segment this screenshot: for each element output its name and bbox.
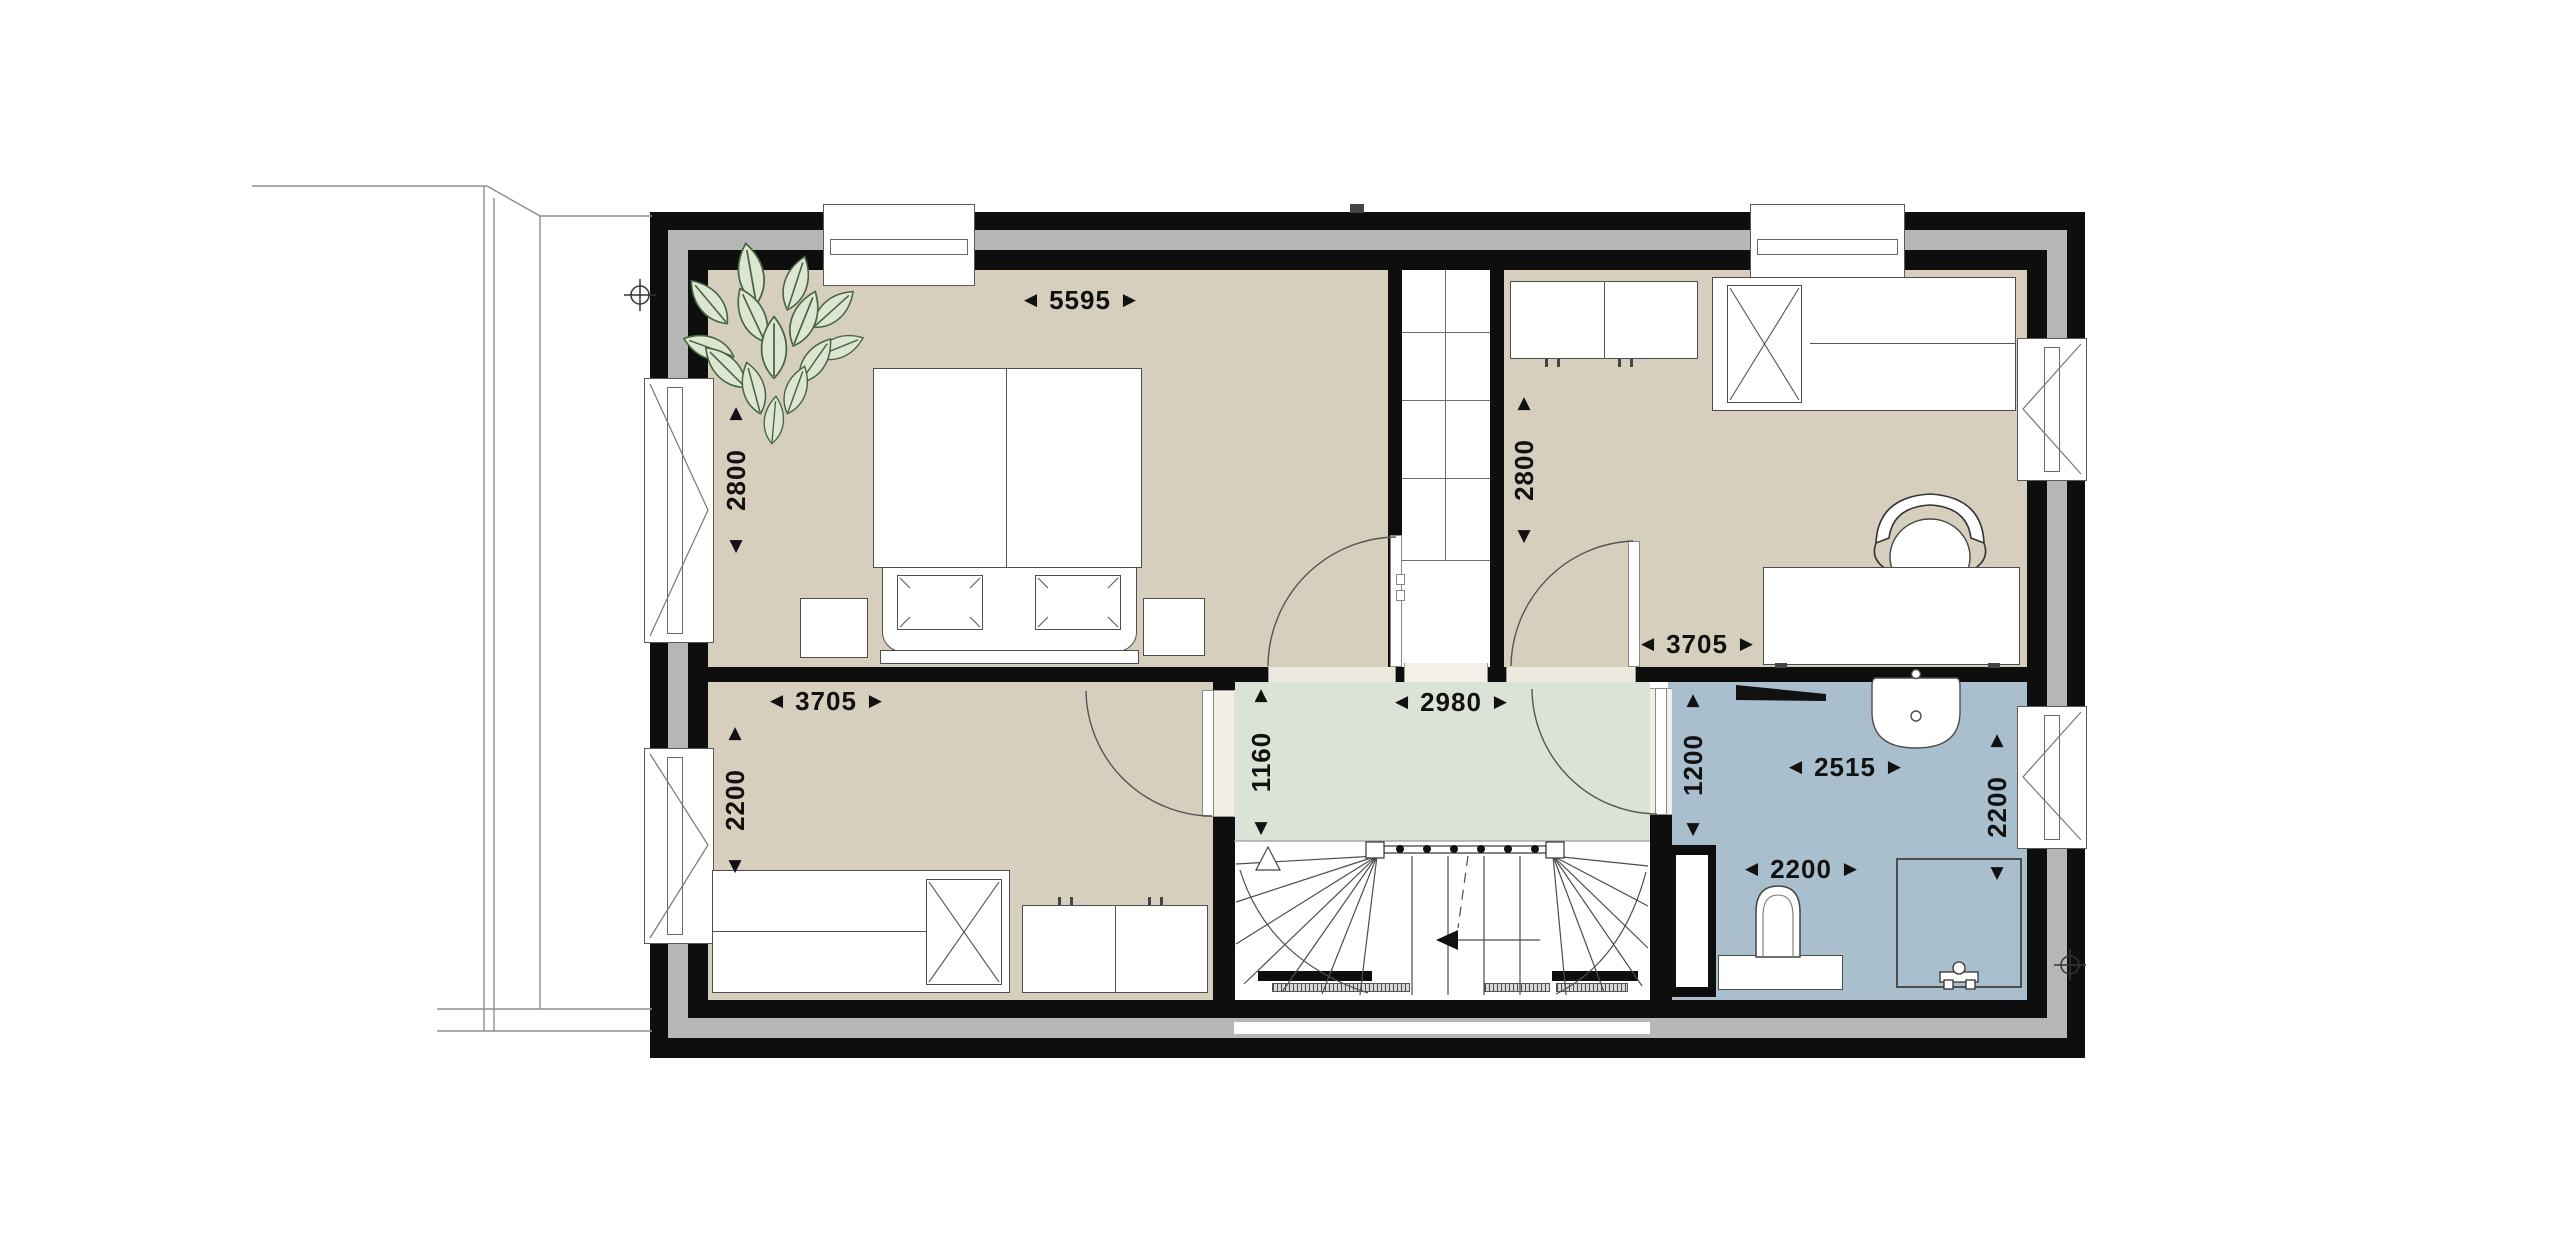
plant <box>680 241 867 444</box>
floor-plan: ◀ 5595 ▶ ▲ 2800 ▼ ▲ 2800 ▼ ◀ 3705 ▶ ◀ 37… <box>0 0 2560 1236</box>
staircase <box>1234 841 1650 995</box>
survey-marker-right <box>2054 949 2086 981</box>
shower-faucet <box>1940 962 1978 989</box>
sink <box>1872 670 1960 749</box>
sink-drain <box>1911 711 1921 721</box>
bl-pillow-x <box>929 882 999 982</box>
master-door-arc <box>1268 537 1396 666</box>
tr-pillow-x <box>1730 288 1799 400</box>
master-pillow-corner-ticks <box>900 578 1118 627</box>
survey-marker-left <box>624 279 656 311</box>
tr-door-arc <box>1511 541 1633 666</box>
stair-up-arrow <box>1256 847 1280 870</box>
sink-faucet <box>1912 670 1921 679</box>
toilet <box>1756 886 1800 957</box>
bath-door-arc <box>1532 689 1657 814</box>
door-swing-arcs <box>1086 537 1657 816</box>
pillow-marks <box>900 288 1799 982</box>
annex-outline <box>252 186 652 1031</box>
walk-direction-arrow <box>1436 930 1458 950</box>
radiator <box>1736 685 1826 701</box>
bl-door-arc <box>1086 691 1212 816</box>
